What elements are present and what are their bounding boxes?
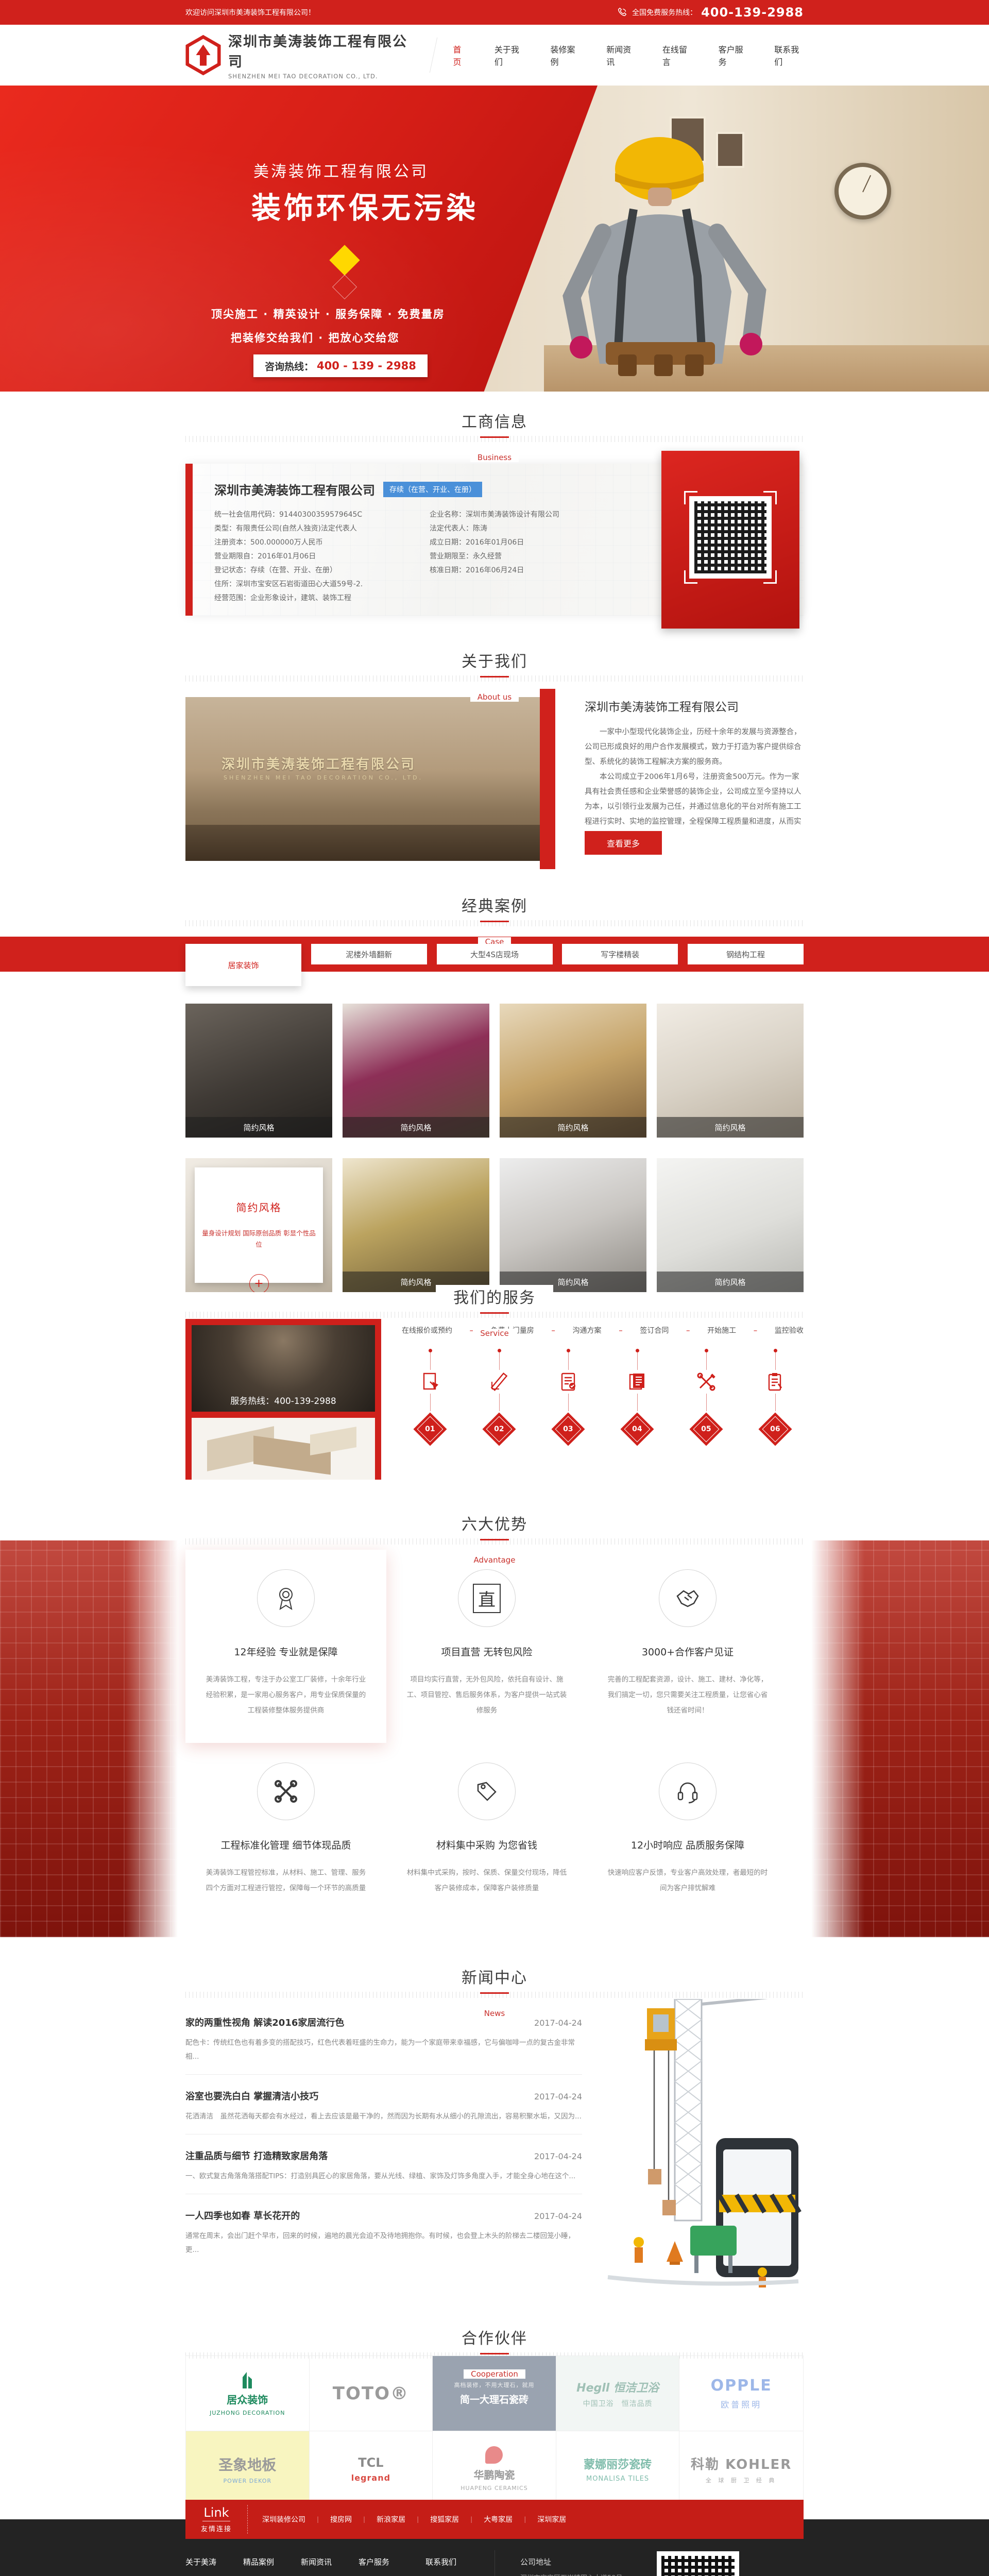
about-paragraph-1: 一家中小型现代化装饰企业，历经十余年的发展与资源整合，公司已形成良好的用户合作发… [585, 725, 804, 770]
business-qr-panel [661, 451, 799, 629]
advantage-title: 12年经验 专业就是保障 [203, 1645, 369, 1658]
step-dash: – [619, 1326, 623, 1335]
advantage-bg-right [811, 1540, 989, 1937]
logo-hexagon-icon [185, 35, 221, 76]
partner-hegii[interactable]: Hegll 恒洁卫浴 中国卫浴 恒洁品质 [556, 2356, 680, 2431]
service-hotline: 服务热线：400-139-2988 [192, 1394, 375, 1406]
view-more-button[interactable]: 查看更多 [585, 831, 662, 855]
title-underline [480, 676, 509, 677]
hotline-label: 全国免费服务热线： [632, 7, 697, 18]
case-tile[interactable]: 简约风格 [343, 1004, 489, 1138]
section-partners: 合作伙伴 Cooperation 居众装饰 JUZHONG DECORATION… [0, 2308, 989, 2519]
nav-item-news[interactable]: 新闻资讯 [606, 43, 636, 67]
section-subtitle: About us [470, 692, 519, 702]
construction-illustration [598, 1999, 804, 2287]
status-badge: 存续（在营、开业、在册） [383, 482, 482, 497]
established-date: 成立日期：2016年01月06日 [430, 536, 646, 550]
step-dash: – [754, 1326, 758, 1335]
partner-juzhong[interactable]: 居众装饰 JUZHONG DECORATION [186, 2356, 310, 2431]
juzhong-logo-icon [240, 2371, 255, 2388]
advantage-desc: 完善的工程配套资源，设计、施工、建材、净化等，我们搞定一切，您只需要关注工程质量… [605, 1672, 771, 1718]
footer-col-contact: 联系我们 联系方式 在线留言 [425, 2556, 456, 2576]
section-subtitle: Advantage [467, 1555, 523, 1565]
nav-item-message[interactable]: 在线留言 [662, 43, 692, 67]
office-sign-text: 深圳市美涛装饰工程有限公司 [221, 754, 416, 773]
case-gallery: 简约风格 简约风格 简约风格 简约风格 简约风格 量身设计规划 国际原创品质 彰… [185, 1004, 804, 1292]
news-title[interactable]: 家的两重性视角 解读2016家居流行色 [185, 2015, 344, 2029]
qr-corner [763, 570, 777, 584]
advantage-desc: 材料集中式采购，按时、保质、保量交付现场，降低客户装修成本，保障客户装修质量 [404, 1865, 570, 1896]
business-right-column: 企业名称：深圳市美涛装饰设计有限公司 法定代表人：陈涛 成立日期：2016年01… [430, 508, 646, 605]
step-label: 开始施工 [707, 1325, 736, 1335]
welcome-text: 欢迎访问深圳市美涛装饰工程有限公司！ [185, 7, 315, 18]
footer-columns: 关于美涛 公司简介 品牌文化 精英团队 精品案例 简约风格 简欧风格 中式风格 … [185, 2556, 456, 2576]
headset-icon [674, 1778, 701, 1805]
section-title: 工商信息 [444, 409, 545, 432]
wall-clock [834, 163, 891, 219]
advantage-card-direct: 直 项目直营 无转包风险 项目均实行直营，无外包风险，依托自有设计、施工、项目管… [386, 1550, 587, 1743]
qr-corner [684, 570, 697, 584]
section-subtitle: News [477, 2009, 513, 2018]
step-number: 05 [701, 1425, 711, 1433]
main-nav: 深圳市美涛装饰工程有限公司 SHENZHEN MEI TAO DECORATIO… [0, 25, 989, 86]
step-number: 03 [563, 1425, 573, 1433]
service-3d-room [192, 1418, 375, 1480]
feature-title: 简约风格 [195, 1199, 323, 1214]
news-title[interactable]: 注重品质与细节 打造精致家居角落 [185, 2149, 328, 2162]
term-from: 营业期限自：2016年01月06日 [214, 550, 420, 564]
logo[interactable]: 深圳市美涛装饰工程有限公司 SHENZHEN MEI TAO DECORATIO… [185, 30, 410, 80]
business-heading: 工商信息 Business [185, 392, 804, 452]
friend-link[interactable]: 深圳家居 [537, 2514, 566, 2524]
quote-document-icon [420, 1371, 440, 1392]
case-tile-label: 简约风格 [185, 1117, 332, 1138]
case-tile[interactable]: 简约风格 [657, 1004, 804, 1138]
business-left-column: 统一社会信用代码：91440300359579645C 类型：有限责任公司(自然… [214, 508, 420, 605]
news-excerpt: 通常在周末，会出门赶个早市，回来的时候，遍地的晨光会迫不及待地拥抱你。有时候，也… [185, 2229, 582, 2257]
advantage-title: 材料集中采购 为您省钱 [404, 1838, 570, 1852]
news-excerpt: 花洒清洁 虽然花洒每天都会有水经过，看上去应该是最干净的，然而因为长期有水从细小… [185, 2110, 582, 2124]
hero-red-overlay [0, 86, 598, 392]
case-tabs: 居家装饰 泥楼外墙翻新 大型4S店现场 写字楼精装 钢结构工程 [185, 944, 804, 986]
section-title: 新闻中心 [444, 1965, 545, 1988]
title-underline [480, 1539, 509, 1540]
advantage-title: 工程标准化管理 细节体现品质 [203, 1838, 369, 1852]
advantage-desc: 快速响应客户反馈，专业客户高效处理，者最短的时间为客户排忧解难 [605, 1865, 771, 1896]
partner-kohler[interactable]: 科勒 KOHLER 全 球 厨 卫 经 典 [679, 2431, 803, 2506]
step-label: 沟通方案 [573, 1325, 602, 1335]
footer-qr-code [657, 2551, 739, 2576]
step-label: 监控验收 [775, 1325, 804, 1335]
friend-links-bar: Link 友情连接 深圳装修公司| 搜房网| 新浪家居| 搜狐家居| 大粤家居|… [185, 2500, 804, 2539]
advantage-desc: 项目均实行直营，无外包风险，依托自有设计、施工、项目管控、售后服务体系，为客户提… [404, 1672, 570, 1718]
step-number: 04 [632, 1425, 642, 1433]
service-photo-block: 服务热线：400-139-2988 [185, 1319, 381, 1480]
diamond-icon [334, 249, 355, 296]
crossed-wrenches-icon [273, 1778, 299, 1804]
news-item: 家的两重性视角 解读2016家居流行色2017-04-24 配色卡：传统红色也有… [185, 2008, 582, 2075]
price-tag-icon [474, 1778, 500, 1804]
advantage-card-standard: 工程标准化管理 细节体现品质 美涛装饰工程管控标准，从材料、施工、管理、服务四个… [185, 1743, 386, 1936]
page: 欢迎访问深圳市美涛装饰工程有限公司！ 全国免费服务热线： 400-139-298… [0, 0, 989, 2576]
phone-icon [617, 7, 628, 18]
partner-power-dekor[interactable]: 圣象地板 POWER DEKOR [186, 2431, 310, 2506]
about-company-title: 深圳市美涛装饰工程有限公司 [585, 697, 804, 715]
step-label: 签订合同 [640, 1325, 669, 1335]
cases-heading: 经典案例 Case [185, 876, 804, 937]
case-tile-label: 简约风格 [500, 1117, 646, 1138]
logo-subtitle: SHENZHEN MEI TAO DECORATION CO., LTD. [228, 73, 410, 80]
registration-status: 登记状态：存续（在营、开业、在册） [214, 564, 420, 578]
nav-item-service[interactable]: 客户服务 [719, 43, 748, 67]
about-red-accent [540, 689, 555, 869]
friend-link[interactable]: 大粤家居 [484, 2514, 513, 2524]
title-underline [480, 2353, 509, 2354]
title-underline [480, 921, 509, 922]
service-steps: 在线报价或预约– 免费上门量房– 沟通方案– 签订合同– 开始施工– 监控验收 [402, 1325, 804, 1335]
title-underline [480, 1992, 509, 1994]
tab-home-decoration[interactable]: 居家装饰 [185, 944, 301, 986]
advantage-desc: 美涛装饰工程，专注于办公室工厂装修，十余年行业经验积累，是一家用心服务客户，用专… [203, 1672, 369, 1718]
service-photo: 服务热线：400-139-2988 [192, 1325, 375, 1412]
footer-col-service: 客户服务 我们的服务 品牌结构工艺 [359, 2556, 399, 2576]
section-business: 工商信息 Business 深圳市美涛装饰工程有限公司 存续（在营、开业、在册）… [0, 392, 989, 631]
friend-link[interactable]: 新浪家居 [377, 2514, 405, 2524]
advantage-card-customers: 3000+合作客户见证 完善的工程配套资源，设计、施工、建材、净化等，我们搞定一… [587, 1550, 788, 1743]
footer-col-about: 关于美涛 公司简介 品牌文化 精英团队 [185, 2556, 216, 2576]
tab-steel-structure[interactable]: 钢结构工程 [688, 944, 804, 964]
section-about: 关于我们 About us 深圳市美涛装饰工程有限公司 SHENZHEN MEI… [0, 631, 989, 876]
news-date: 2017-04-24 [534, 2092, 582, 2102]
advantage-bg-left [0, 1540, 178, 1937]
title-underline [480, 1312, 509, 1314]
contract-icon [627, 1371, 647, 1392]
inspection-clipboard-icon [765, 1371, 786, 1392]
nav-item-contact[interactable]: 联系我们 [774, 43, 804, 67]
registered-capital: 注册资本：500.000000万人民币 [214, 536, 420, 550]
step-number: 06 [770, 1425, 780, 1433]
feature-desc: 量身设计规划 国际原创品质 彰显个性品位 [202, 1228, 316, 1250]
nav-divider [429, 38, 437, 73]
legal-representative: 法定代表人：陈涛 [430, 522, 646, 536]
qr-corner [763, 491, 777, 504]
hero-slogan-2: 把装修交给我们 · 把放心交给您 [231, 330, 400, 345]
enterprise-name: 企业名称：深圳市美涛装饰设计有限公司 [430, 508, 646, 522]
credit-code: 统一社会信用代码：91440300359579645C [214, 508, 420, 522]
office-sign-en: SHENZHEN MEI TAO DECORATION CO., LTD. [224, 774, 423, 781]
news-excerpt: 配色卡：传统红色也有着多变的搭配技巧，红色代表着旺盛的生命力，能为一个家庭带来幸… [185, 2036, 582, 2064]
hero-hotline: 咨询热线： 400 - 139 - 2988 [253, 354, 428, 377]
advantage-title: 12小时响应 品质服务保障 [605, 1838, 771, 1852]
hero-hotline-number: 400 - 139 - 2988 [317, 360, 416, 372]
term-to: 营业期限至：永久经营 [430, 550, 646, 564]
qr-corner [684, 491, 697, 504]
nav-item-about[interactable]: 关于我们 [494, 43, 524, 67]
nav-menu: 首页 关于我们 装修案例 新闻资讯 在线留言 客户服务 联系我们 [453, 43, 804, 67]
company-name: 深圳市美涛装饰工程有限公司 [214, 480, 375, 498]
section-title: 经典案例 [444, 893, 545, 916]
tab-wall-renovation[interactable]: 泥楼外墙翻新 [311, 944, 427, 964]
friend-link[interactable]: 搜房网 [330, 2514, 352, 2524]
business-scope: 经营范围：企业形象设计，建筑、装饰工程 [214, 591, 420, 605]
partner-toto[interactable]: TOTO® [310, 2356, 433, 2431]
friend-link[interactable]: 搜狐家居 [430, 2514, 459, 2524]
tools-icon [696, 1371, 717, 1392]
news-item: 注重品质与细节 打造精致家居角落2017-04-24 一、欧式复古角落角落搭配T… [185, 2142, 582, 2194]
section-news: 新闻中心 News 家的两重性视角 解读2016家居流行色2017-04-24 … [0, 1947, 989, 2308]
step-number: 01 [425, 1425, 435, 1433]
section-services: 我们的服务 Service 服务热线：400-139-2988 在线报价或预约–… [0, 1267, 989, 1494]
nav-item-home[interactable]: 首页 [453, 43, 468, 67]
step-dash: – [551, 1326, 555, 1335]
ruler-icon [489, 1371, 509, 1392]
case-tile-label: 简约风格 [657, 1117, 804, 1138]
news-date: 2017-04-24 [534, 2151, 582, 2161]
news-date: 2017-04-24 [534, 2018, 582, 2028]
partner-monalisa[interactable]: 蒙娜丽莎瓷砖 MONALISA TILES [556, 2431, 680, 2506]
direct-glyph-icon: 直 [473, 1584, 501, 1613]
partner-opple[interactable]: OPPLE 欧普照明 [679, 2356, 803, 2431]
news-item: 一人四季也如春 草长花开的2017-04-24 通常在周末，会出门赶个早市，回来… [185, 2201, 582, 2267]
section-title: 关于我们 [444, 649, 545, 671]
news-excerpt: 一、欧式复古角落角落搭配TIPS：打造别具匠心的家居角落，要从光线、绿植、家饰及… [185, 2170, 582, 2183]
news-list: 家的两重性视角 解读2016家居流行色2017-04-24 配色卡：传统红色也有… [185, 2008, 582, 2275]
news-title[interactable]: 一人四季也如春 草长花开的 [185, 2209, 300, 2222]
advantages-heading: 六大优势 Advantage [185, 1494, 804, 1555]
advantage-card-materials: 材料集中采购 为您省钱 材料集中式采购，按时、保质、保量交付现场，降低客户装修成… [386, 1743, 587, 1936]
section-subtitle: Business [470, 453, 519, 462]
tab-4s-store[interactable]: 大型4S店现场 [437, 944, 553, 964]
title-underline [480, 436, 509, 438]
advantage-card-experience: 12年经验 专业就是保障 美涛装饰工程，专注于办公室工厂装修，十余年行业经验积累… [185, 1550, 386, 1743]
hero-company-line: 美涛装饰工程有限公司 [253, 159, 429, 181]
partner-gani-marble[interactable]: 高档装修，不用大理石，就用 简一大理石瓷砖 [433, 2356, 556, 2431]
about-photo: 深圳市美涛装饰工程有限公司 SHENZHEN MEI TAO DECORATIO… [185, 697, 546, 861]
medal-icon [272, 1584, 300, 1612]
hotline-number: 400-139-2988 [701, 5, 804, 20]
friend-links-label: Link 友情连接 [185, 2505, 247, 2533]
address-row: 住所：深圳市宝安区石岩街道田心大道59号-2. [214, 578, 420, 591]
section-subtitle: Service [473, 1329, 516, 1338]
section-title: 我们的服务 [436, 1285, 553, 1308]
company-type: 类型：有限责任公司(自然人独资)法定代表人 [214, 522, 420, 536]
address-value: 深圳市宝安区石岩镇田心大道59号 [520, 2572, 623, 2576]
section-advantages: 六大优势 Advantage 12年经验 专业就是保障 美涛装饰工程，专注于办公… [0, 1494, 989, 1947]
footer-col-news: 新闻资讯 公司新闻 行业新闻 装修攻略 [301, 2556, 332, 2576]
section-cases: 经典案例 Case 居家装饰 泥楼外墙翻新 大型4S店现场 写字楼精装 钢结构工… [0, 876, 989, 1267]
reception-desk [185, 825, 546, 861]
section-subtitle: Cooperation [464, 2369, 525, 2379]
handshake-icon [673, 1584, 702, 1613]
news-date: 2017-04-24 [534, 2211, 582, 2221]
advantage-card-response: 12小时响应 品质服务保障 快速响应客户反馈，专业客户高效处理，者最短的时间为客… [587, 1743, 788, 1936]
approval-date: 核准日期：2016年06月24日 [430, 564, 646, 578]
friend-link[interactable]: 深圳装修公司 [262, 2514, 305, 2524]
case-tile[interactable]: 简约风格 [185, 1004, 332, 1138]
partner-tcl-legrand[interactable]: TCL legrand [310, 2431, 433, 2506]
dashed-divider [247, 2505, 248, 2534]
footer-contact: 公司地址 深圳市宝安区石岩镇田心大道59号 联系电话 400-139-2988 … [520, 2556, 623, 2576]
nav-item-cases[interactable]: 装修案例 [551, 43, 580, 67]
qr-code [689, 496, 772, 579]
tab-office-building[interactable]: 写字楼精装 [562, 944, 678, 964]
plan-checklist-icon [558, 1371, 578, 1392]
logo-title: 深圳市美涛装饰工程有限公司 [228, 30, 410, 71]
huapeng-bird-icon [485, 2446, 503, 2464]
hero-slogan-1: 顶尖施工 · 精英设计 · 服务保障 · 免费量房 [211, 306, 445, 321]
worker-illustration [556, 122, 778, 379]
section-title: 六大优势 [444, 1512, 545, 1534]
section-title: 合作伙伴 [444, 2326, 545, 2348]
hero-hotline-label: 咨询热线： [265, 359, 314, 373]
footer-col-cases: 精品案例 简约风格 简欧风格 中式风格 [243, 2556, 274, 2576]
service-step-icons: 01 02 03 04 05 06 [402, 1349, 804, 1441]
hero-banner: 美涛装饰工程有限公司 装饰环保无污染 顶尖施工 · 精英设计 · 服务保障 · … [0, 86, 989, 392]
footer-divider [494, 2550, 495, 2576]
advantage-title: 项目直营 无转包风险 [404, 1645, 570, 1658]
hero-headline: 装饰环保无污染 [251, 184, 479, 227]
step-dash: – [686, 1326, 690, 1335]
news-item: 浴室也要洗白白 掌握清洁小技巧2017-04-24 花洒清洁 虽然花洒每天都会有… [185, 2082, 582, 2134]
business-card: 深圳市美涛装饰工程有限公司 存续（在营、开业、在册） 统一社会信用代码：9144… [185, 464, 804, 616]
advantage-title: 3000+合作客户见证 [605, 1645, 771, 1658]
advantage-desc: 美涛装饰工程管控标准，从材料、施工、管理、服务四个方面对工程进行管控，保障每一个… [203, 1865, 369, 1896]
address-label: 公司地址 [520, 2556, 623, 2567]
step-number: 02 [494, 1425, 504, 1433]
partner-huapeng[interactable]: 华鹏陶瓷 HUAPENG CERAMICS [433, 2431, 556, 2506]
footer: Link 友情连接 深圳装修公司| 搜房网| 新浪家居| 搜狐家居| 大粤家居|… [0, 2519, 989, 2576]
news-title[interactable]: 浴室也要洗白白 掌握清洁小技巧 [185, 2089, 318, 2103]
case-tile[interactable]: 简约风格 [500, 1004, 646, 1138]
case-tile-label: 简约风格 [343, 1117, 489, 1138]
advantage-grid: 12年经验 专业就是保障 美涛装饰工程，专注于办公室工厂装修，十余年行业经验积累… [185, 1550, 804, 1936]
topbar: 欢迎访问深圳市美涛装饰工程有限公司！ 全国免费服务热线： 400-139-298… [0, 0, 989, 25]
about-heading: 关于我们 About us [185, 631, 804, 692]
step-label: 在线报价或预约 [402, 1325, 452, 1335]
